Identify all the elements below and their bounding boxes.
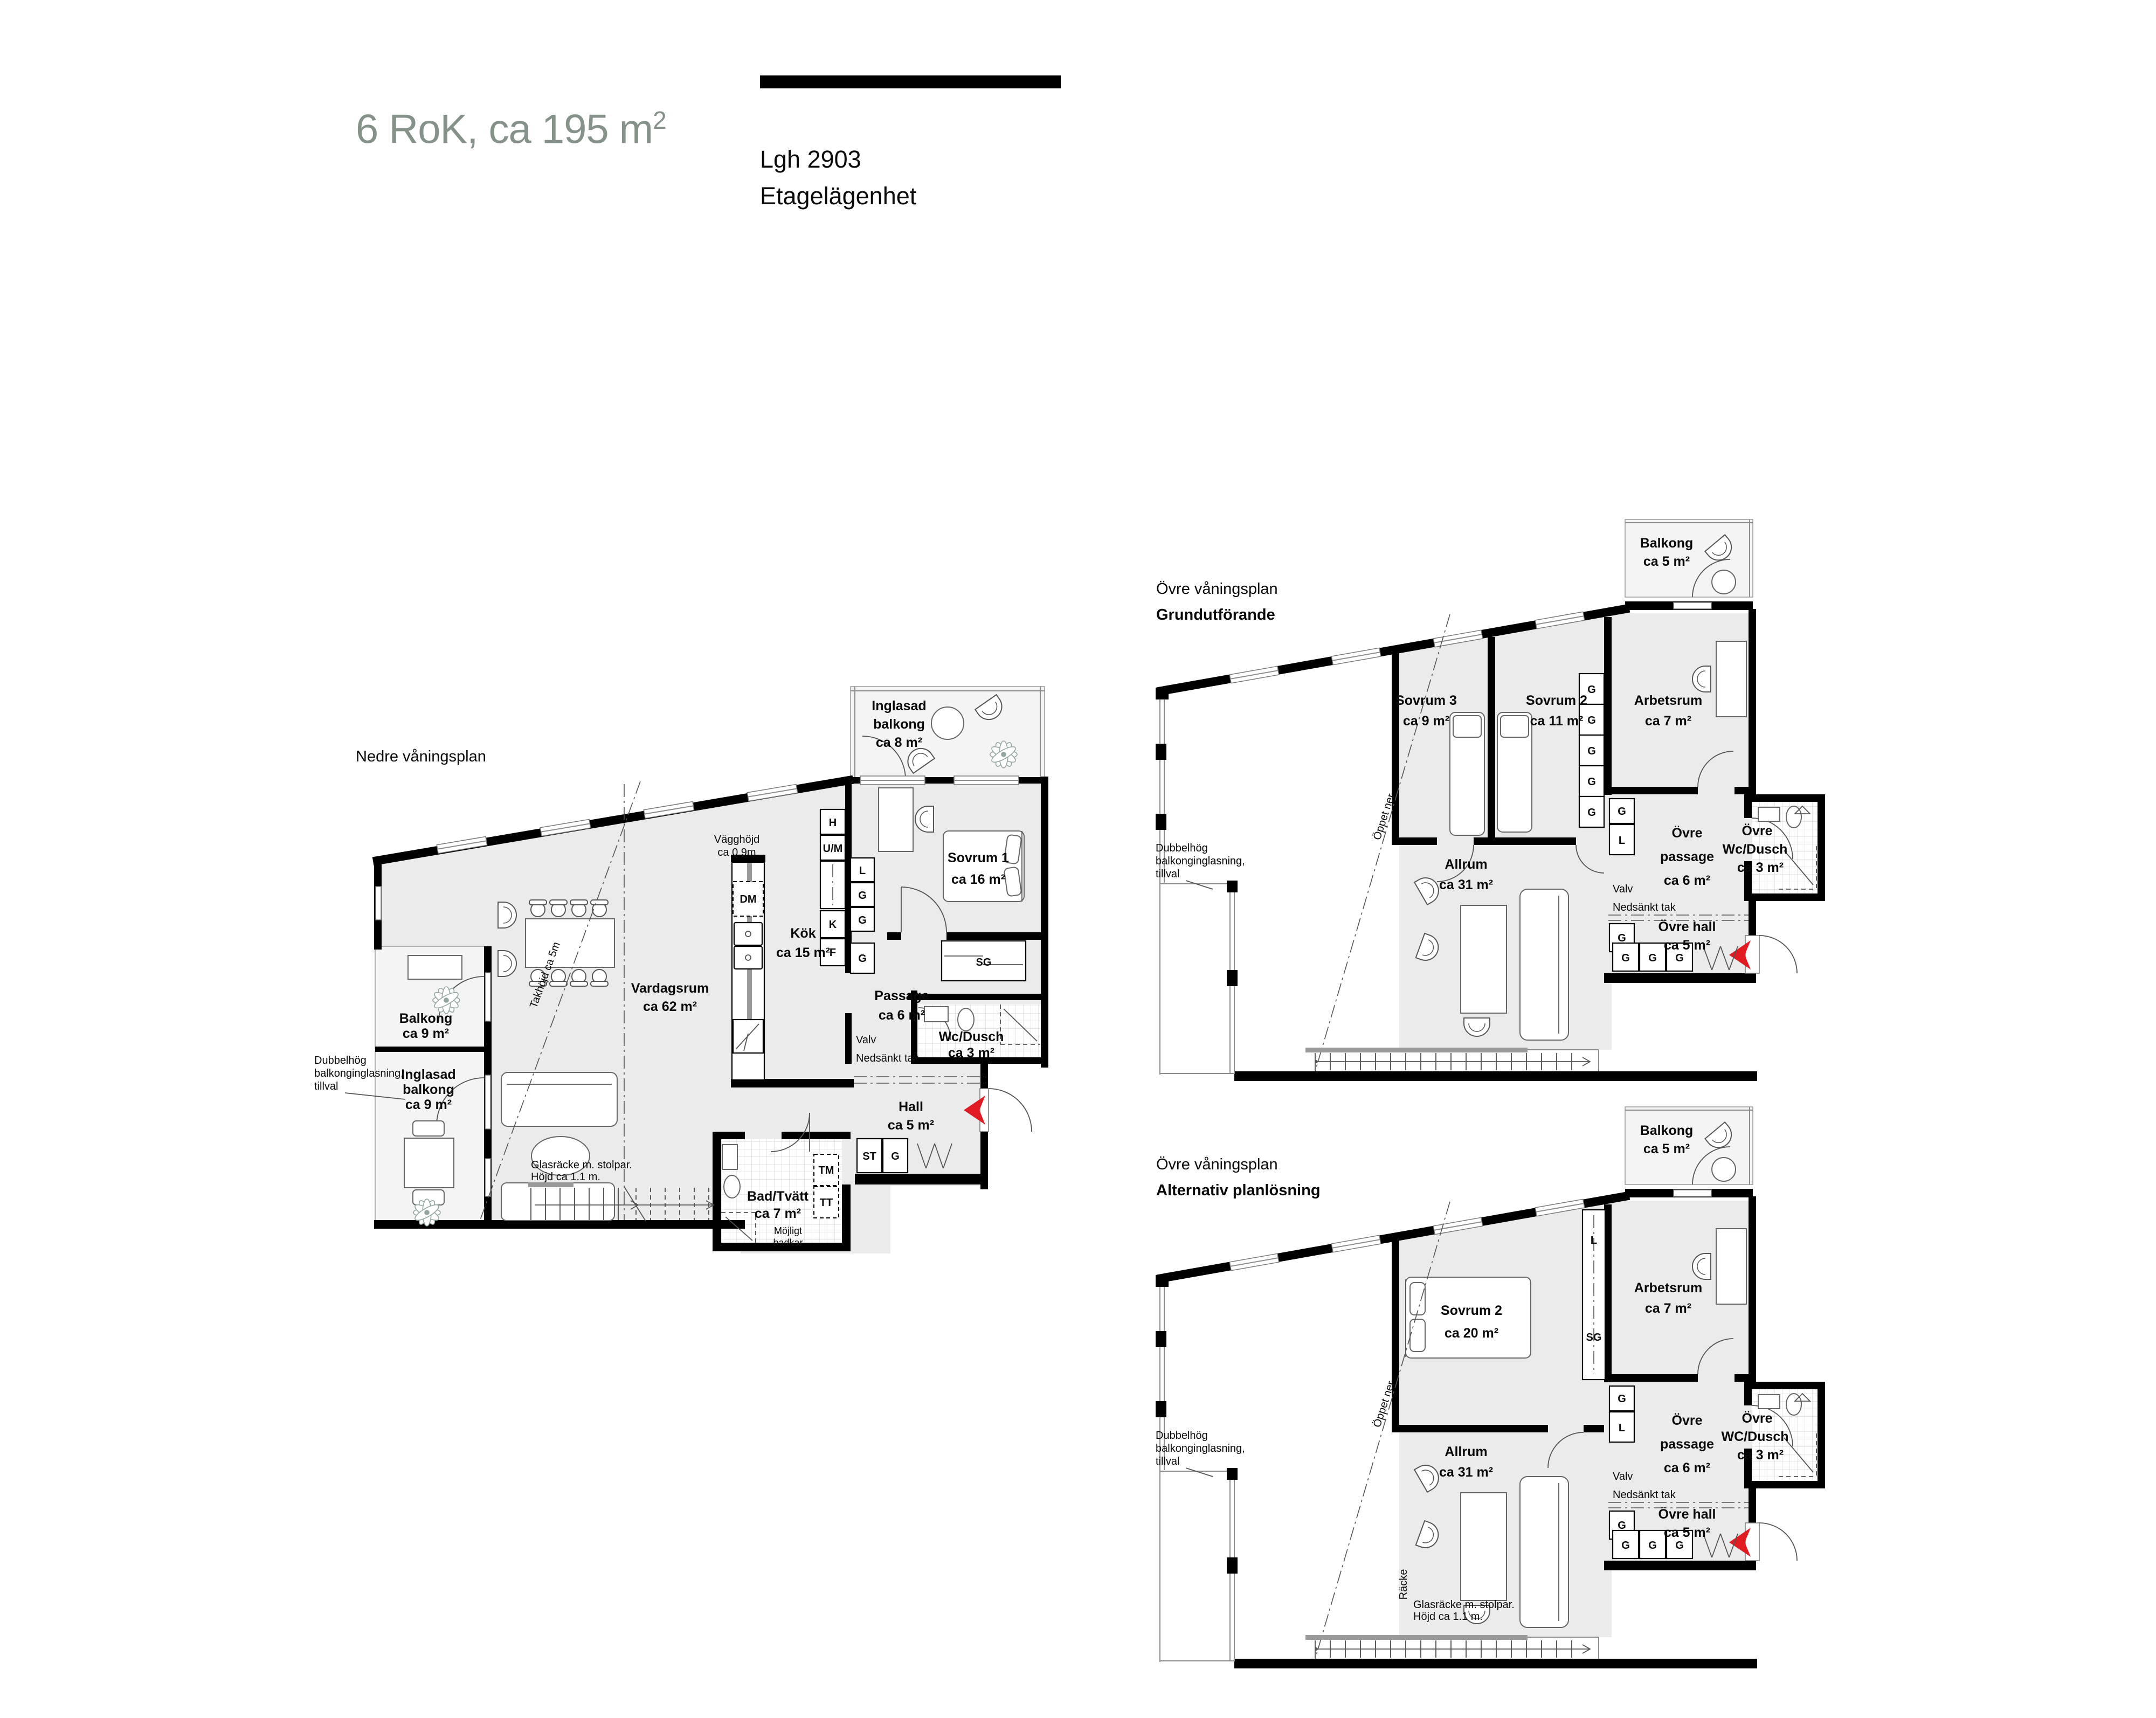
toilet-icon [958, 1008, 974, 1031]
room-label: Allrum [1445, 1444, 1487, 1459]
closet-g: G [858, 890, 867, 902]
bench-icon [501, 1183, 614, 1221]
room-label: ca 7 m² [1645, 1301, 1691, 1316]
table-icon [1461, 905, 1507, 1013]
closet-l: L [859, 865, 866, 877]
annotation: Räcke [1398, 1569, 1409, 1600]
room-label: Hall [899, 1099, 923, 1114]
closet-g: G [1618, 1393, 1626, 1405]
room-label: ca 15 m² [776, 945, 830, 960]
annotation: Vägghöjd [714, 834, 760, 846]
annotation: Dubbelhög [314, 1055, 367, 1066]
room-label: Övre [1672, 825, 1703, 841]
closet-k: K [829, 919, 837, 931]
sink-icon [722, 1145, 737, 1169]
room-label: Arbetsrum [1634, 1280, 1702, 1296]
room-label: ca 11 m² [1530, 713, 1584, 729]
closet-h: H [829, 817, 837, 829]
closet-g: G [1587, 715, 1596, 726]
room-label: Inglasad [872, 698, 926, 713]
room-label: Sovrum 2 [1526, 693, 1587, 708]
room-label: Övre [1742, 1410, 1773, 1426]
closet-g: G [1587, 807, 1596, 819]
closet-g: G [1648, 952, 1657, 964]
annotation: Höjd ca 1.1 m. [531, 1171, 600, 1183]
header-bar [760, 75, 1061, 88]
page-title: 6 RoK, ca 195 m2 [356, 106, 666, 153]
closet-sg: SG [1586, 1332, 1602, 1343]
closet-g: G [1618, 932, 1626, 944]
room-label: ca 8 m² [876, 735, 922, 750]
plan-subtitle: Alternativ planlösning [1156, 1182, 1321, 1199]
closet-f: F [830, 947, 836, 959]
kitchen-counter: DM [732, 862, 764, 1080]
stairs-upper-alt [1305, 1635, 1599, 1659]
sofa-icon [501, 1072, 617, 1126]
room-label: Wc/Dusch [1723, 842, 1788, 857]
annotation: Nedsänkt tak [1613, 1489, 1676, 1501]
floor-plan-page: 6 RoK, ca 195 m2 Lgh 2903 Etagelägenhet … [0, 0, 2156, 1718]
room-label: Övre hall [1659, 919, 1716, 934]
room-label: Balkong [1640, 1123, 1694, 1138]
room-label: balkong [403, 1082, 454, 1097]
round-table-icon [931, 707, 964, 739]
room-label: Passage [874, 988, 929, 1003]
plan-upper-main: Övre våningsplan Grundutförande [1148, 512, 1833, 1094]
room-label: Arbetsrum [1634, 693, 1702, 708]
page-title-sup: 2 [653, 106, 666, 134]
closet-tm: TM [819, 1165, 834, 1176]
room-label: ca 6 m² [1664, 1460, 1710, 1475]
plan-lower-floor: Nedre våningsplan [291, 674, 1078, 1277]
sink-icon [1758, 807, 1780, 821]
room-label: ca 9 m² [1403, 713, 1449, 729]
round-table-icon [1712, 570, 1736, 594]
room-label: ca 3 m² [948, 1045, 994, 1061]
room-label: Inglasad [401, 1067, 455, 1082]
room-label: ca 5 m² [1643, 554, 1690, 569]
plan-upper-alt: Övre våningsplan Alternativ planlösning [1148, 1099, 1833, 1681]
room-label: ca 9 m² [403, 1026, 449, 1041]
desk-icon [879, 788, 913, 851]
desk-icon [1716, 1229, 1746, 1304]
closet-g: G [1618, 806, 1626, 818]
room-label: Övre [1742, 823, 1773, 839]
room-label: Allrum [1445, 857, 1487, 872]
annotation: Dubbelhög [1156, 842, 1208, 854]
sink-icon [924, 1007, 948, 1022]
annotation: balkonginglasning, [314, 1068, 404, 1079]
closet-g: G [891, 1151, 900, 1162]
closet-g: G [1587, 684, 1596, 696]
annotation: tillval [1156, 868, 1179, 880]
annotation: badkar [773, 1237, 803, 1248]
annotation: balkonginglasning, [1156, 855, 1245, 867]
closet-g: G [1587, 776, 1596, 788]
dining-table-icon [526, 919, 614, 967]
annotation: Glasräcke m. stolpar. [1413, 1599, 1515, 1611]
closet-g: G [1621, 952, 1630, 964]
annotation: Höjd ca 1.1 m. [1413, 1611, 1483, 1623]
closet-st: ST [862, 1151, 876, 1162]
apartment-number: Lgh 2903 [760, 146, 861, 174]
annotation: tillval [314, 1080, 338, 1092]
apartment-type: Etagelägenhet [760, 182, 916, 210]
toilet-icon [724, 1175, 740, 1198]
room-label: ca 3 m² [1737, 860, 1784, 875]
room-label: Sovrum 2 [1441, 1303, 1502, 1318]
room-label: Sovrum 3 [1395, 693, 1457, 708]
room-label: ca 3 m² [1737, 1447, 1784, 1463]
annotation: Nedsänkt tak [856, 1052, 920, 1064]
balcony-table-icon [404, 1138, 454, 1188]
balcony-table-icon [408, 955, 462, 979]
plan-subtitle: Grundutförande [1156, 606, 1275, 624]
plan-title: Övre våningsplan [1156, 1156, 1278, 1173]
stairs-upper-main [1305, 1048, 1599, 1071]
closet-um: U/M [823, 843, 843, 855]
closet-g: G [1621, 1540, 1630, 1551]
round-table-icon [1712, 1158, 1736, 1181]
room-label: Kök [790, 926, 816, 941]
room-label: ca 6 m² [879, 1008, 925, 1023]
closet-g: G [1648, 1540, 1657, 1551]
closet-g: G [858, 953, 867, 965]
room-label: ca 31 m² [1439, 1465, 1493, 1480]
closet-g: G [1618, 1520, 1626, 1532]
annotation: ca 0.9m [717, 847, 756, 858]
room-label: Vardagsrum [631, 981, 709, 996]
annotation: Dubbelhög [1156, 1430, 1208, 1442]
closet-g: G [1675, 1540, 1684, 1551]
room-label: ca 5 m² [888, 1118, 934, 1133]
desk-icon [1716, 641, 1746, 717]
room-label: ca 62 m² [643, 999, 697, 1014]
room-label: ca 9 m² [405, 1097, 452, 1112]
closet-dm: DM [740, 893, 756, 905]
closet-l: L [1619, 1422, 1625, 1434]
closet-g: G [1587, 745, 1596, 757]
table-icon [1461, 1493, 1507, 1601]
room-label: ca 5 m² [1664, 938, 1710, 953]
room-label: Balkong [399, 1011, 453, 1026]
room-label: Övre hall [1659, 1506, 1716, 1522]
annotation: Glasräcke m. stolpar. [531, 1159, 632, 1171]
room-label: Övre [1672, 1412, 1703, 1428]
annotation: Valv [1613, 883, 1633, 895]
closet-l: L [1591, 1235, 1597, 1246]
room-label: ca 7 m² [755, 1206, 801, 1221]
room-label: passage [1660, 849, 1714, 864]
room-label: ca 7 m² [1645, 713, 1691, 729]
closet-l: L [1619, 835, 1625, 847]
room-label: ca 5 m² [1643, 1141, 1690, 1156]
sink-icon [1758, 1395, 1780, 1409]
closet-sg: SG [976, 957, 992, 968]
room-label: ca 31 m² [1439, 877, 1493, 892]
room-label: passage [1660, 1437, 1714, 1452]
room-label: WC/Dusch [1722, 1429, 1789, 1444]
room-label: ca 16 m² [951, 872, 1005, 887]
annotation: Valv [856, 1034, 876, 1046]
annotation: Möjligt [774, 1225, 802, 1236]
plan-lower-title: Nedre våningsplan [356, 748, 486, 765]
room-label: balkong [873, 717, 925, 732]
room-label: Wc/Dusch [939, 1029, 1004, 1044]
closet-tt: TT [820, 1197, 833, 1209]
annotation: Valv [1613, 1471, 1633, 1483]
closet-g: G [858, 915, 867, 926]
room-label: ca 6 m² [1664, 873, 1710, 888]
room-label: ca 5 m² [1664, 1525, 1710, 1540]
room-label: Bad/Tvätt [747, 1189, 809, 1204]
sofa-icon [1520, 1477, 1568, 1627]
sofa-icon [1520, 889, 1568, 1040]
room-label: ca 20 m² [1445, 1326, 1498, 1341]
annotation: Nedsänkt tak [1613, 902, 1676, 913]
room-label: Sovrum 1 [948, 850, 1009, 865]
annotation: tillval [1156, 1456, 1179, 1467]
room-label: Balkong [1640, 536, 1694, 551]
plan-title: Övre våningsplan [1156, 580, 1278, 598]
closet-g: G [1675, 952, 1684, 964]
annotation: balkonginglasning, [1156, 1443, 1245, 1454]
